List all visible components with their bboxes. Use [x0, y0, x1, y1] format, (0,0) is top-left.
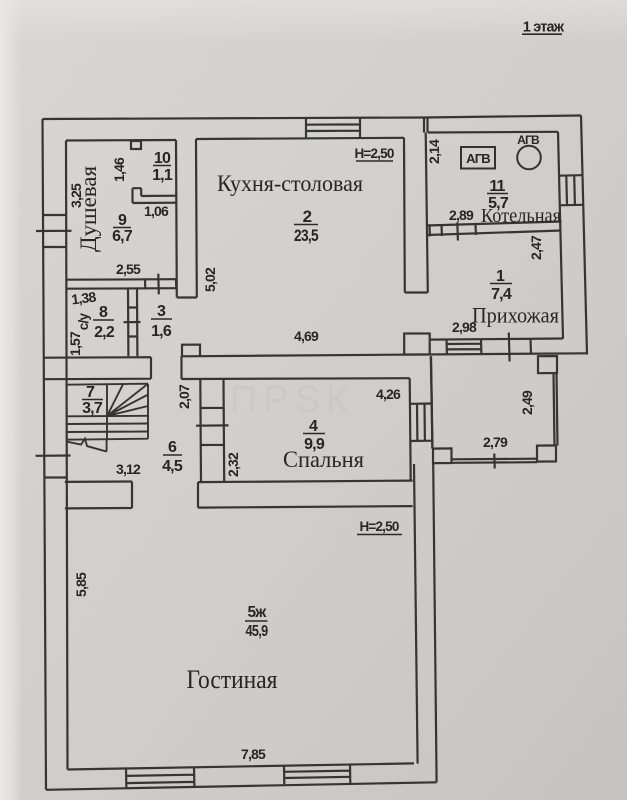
svg-text:4,26: 4,26 — [376, 386, 401, 402]
svg-text:Кухня-столовая: Кухня-столовая — [217, 171, 363, 196]
svg-text:с/у: с/у — [76, 313, 91, 331]
svg-text:АГВ: АГВ — [466, 151, 490, 166]
svg-text:3,12: 3,12 — [116, 461, 141, 477]
svg-text:10: 10 — [154, 150, 171, 167]
svg-text:2,89: 2,89 — [449, 207, 474, 223]
svg-text:1,06: 1,06 — [144, 203, 169, 219]
svg-text:2: 2 — [303, 207, 312, 226]
svg-text:2,79: 2,79 — [483, 434, 508, 450]
svg-text:ПРSК: ПРSК — [230, 379, 354, 421]
svg-text:1,6: 1,6 — [151, 323, 172, 340]
svg-text:2,98: 2,98 — [452, 319, 477, 335]
svg-text:23,5: 23,5 — [294, 226, 318, 245]
svg-text:Н=2,50: Н=2,50 — [359, 519, 398, 534]
svg-text:7,4: 7,4 — [491, 286, 512, 303]
svg-text:5,02: 5,02 — [202, 267, 218, 292]
svg-text:8: 8 — [99, 304, 108, 321]
svg-text:9,9: 9,9 — [304, 436, 325, 453]
svg-text:2,49: 2,49 — [519, 390, 535, 415]
svg-text:7: 7 — [86, 384, 95, 401]
svg-text:Прихожая: Прихожая — [472, 303, 559, 328]
svg-text:3,7: 3,7 — [82, 400, 103, 417]
svg-text:7,85: 7,85 — [241, 746, 266, 762]
svg-text:3: 3 — [157, 303, 166, 320]
svg-text:6,7: 6,7 — [112, 228, 133, 245]
svg-text:1,38: 1,38 — [70, 289, 97, 308]
svg-text:1 этаж: 1 этаж — [523, 20, 565, 36]
svg-text:5,7: 5,7 — [488, 195, 509, 212]
svg-text:9: 9 — [118, 212, 127, 229]
svg-text:2,14: 2,14 — [426, 139, 442, 164]
svg-text:3,25: 3,25 — [68, 183, 84, 208]
svg-text:1,46: 1,46 — [111, 157, 127, 182]
svg-text:6: 6 — [168, 439, 177, 456]
svg-text:Гостиная: Гостиная — [187, 665, 278, 694]
svg-text:1,1: 1,1 — [152, 167, 173, 184]
svg-text:1: 1 — [496, 268, 505, 285]
svg-text:2,32: 2,32 — [225, 452, 241, 477]
svg-text:2,47: 2,47 — [528, 235, 544, 260]
svg-text:11: 11 — [489, 178, 505, 195]
svg-text:2,2: 2,2 — [94, 324, 115, 341]
svg-text:4,5: 4,5 — [162, 458, 183, 475]
svg-text:4: 4 — [309, 418, 318, 435]
svg-text:Н=2,50: Н=2,50 — [354, 146, 393, 161]
svg-text:45,9: 45,9 — [246, 623, 269, 640]
svg-text:5,85: 5,85 — [73, 572, 89, 597]
svg-text:2,07: 2,07 — [176, 384, 192, 409]
svg-text:1,57: 1,57 — [67, 331, 83, 356]
svg-text:4,69: 4,69 — [294, 328, 319, 344]
svg-text:5ж: 5ж — [247, 604, 267, 621]
svg-text:2,55: 2,55 — [116, 261, 141, 277]
